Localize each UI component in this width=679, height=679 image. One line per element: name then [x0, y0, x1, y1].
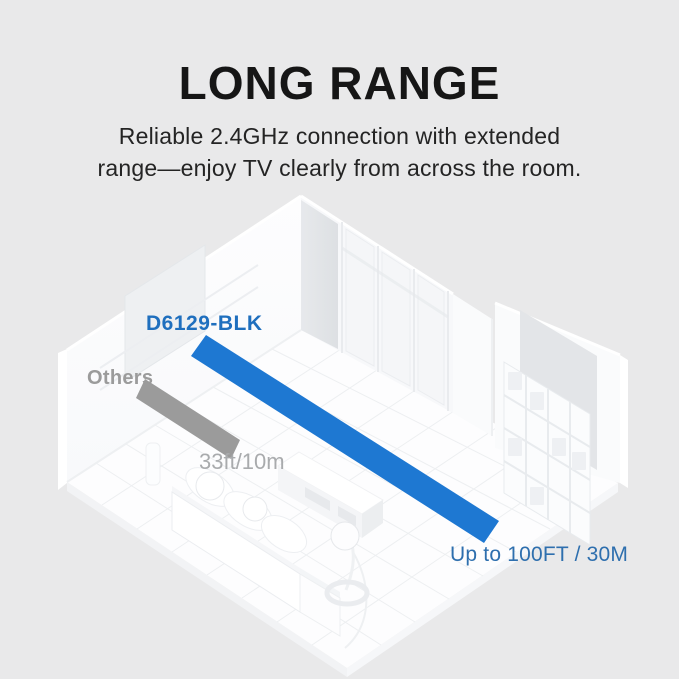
product-model-label: D6129-BLK — [146, 312, 263, 336]
round-pillow — [243, 497, 267, 521]
isometric-room-illustration — [0, 0, 679, 679]
left-wall-outer-edge — [58, 349, 67, 490]
others-label: Others — [87, 367, 153, 390]
wall-column — [453, 294, 492, 436]
product-range-text: Up to 100FT / 30M — [450, 543, 628, 567]
alcove-outer-edge — [620, 355, 628, 488]
round-pillow — [196, 472, 224, 500]
marketing-panel: LONG RANGE Reliable 2.4GHz connection wi… — [0, 0, 679, 679]
others-range-text: 33ft/10m — [199, 449, 285, 475]
corner-panel — [301, 200, 338, 349]
pedestal-vase — [146, 443, 160, 485]
